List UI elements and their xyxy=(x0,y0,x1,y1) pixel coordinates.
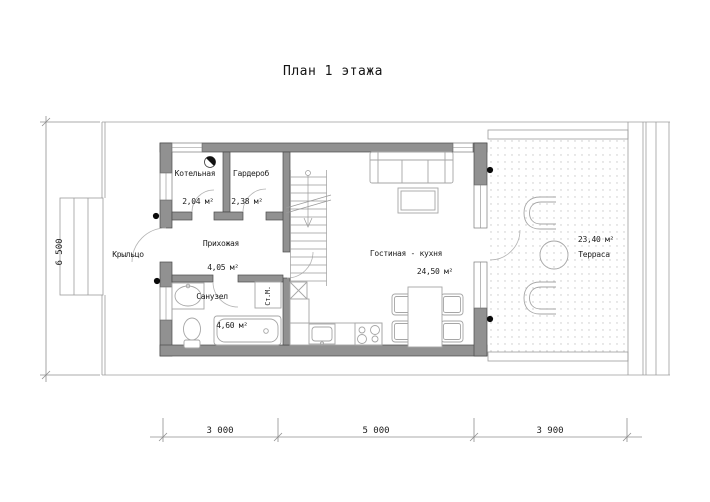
wall-dot xyxy=(154,278,160,284)
stairs xyxy=(286,170,331,286)
dim-bottom-2: 5 000 xyxy=(362,426,389,436)
area-bathroom: 4,60 м² xyxy=(216,321,248,330)
terrace-deck xyxy=(488,130,628,361)
area-hallway: 4,05 м² xyxy=(207,263,239,272)
kitchen-counter xyxy=(290,323,382,345)
label-terrace: Терраса xyxy=(578,250,610,259)
wall-dot xyxy=(153,213,159,219)
dining-table xyxy=(408,287,442,347)
wall-dot xyxy=(487,167,493,173)
dim-left: 6 500 xyxy=(55,238,65,265)
sofa xyxy=(370,152,453,183)
area-living-kitchen: 24,50 м² xyxy=(417,267,453,276)
wall-dot xyxy=(487,316,493,322)
label-living-kitchen: Гостиная - кухня xyxy=(370,249,442,258)
area-terrace: 23,40 м² xyxy=(578,235,614,244)
label-washing-machine: Ст.М. xyxy=(264,286,272,306)
label-wardrobe: Гардероб xyxy=(233,168,270,178)
toilet xyxy=(184,318,201,340)
fridge xyxy=(290,299,309,323)
dim-bottom-1: 3 000 xyxy=(206,426,233,436)
area-wardrobe: 2,38 м² xyxy=(231,197,263,206)
label-hallway: Прихожая xyxy=(203,239,239,248)
floor-plan-drawing: 3 000 5 000 3 900 6 500 Котельная 2,04 м… xyxy=(0,0,710,502)
coffee-table xyxy=(398,188,438,213)
area-boiler-room: 2,04 м² xyxy=(182,197,214,206)
porch-steps xyxy=(60,198,103,295)
label-bathroom: Санузел xyxy=(196,292,228,301)
label-boiler-room: Котельная xyxy=(175,169,216,178)
floor-plan-canvas: План 1 этажа xyxy=(0,0,710,502)
dim-bottom-3: 3 900 xyxy=(536,426,563,436)
label-porch: Крыльцо xyxy=(112,250,144,259)
